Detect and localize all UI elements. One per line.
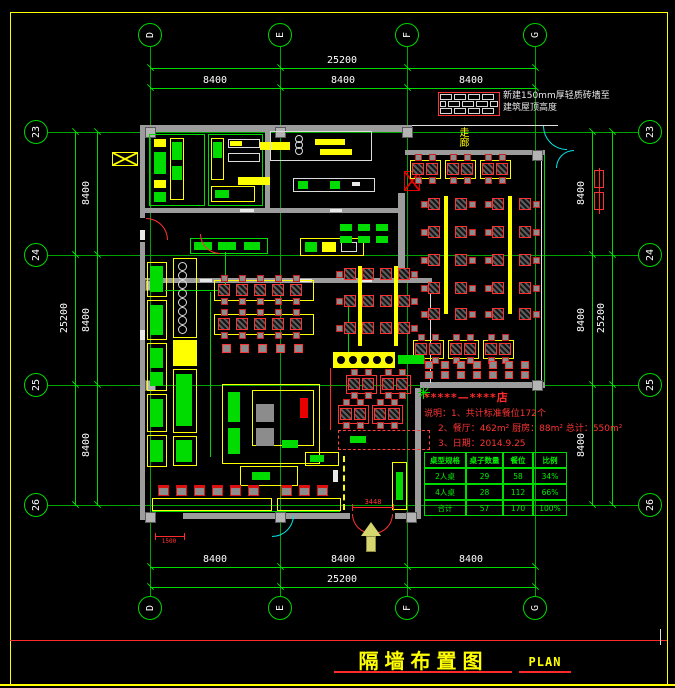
axis-bubble-label: 26: [25, 494, 47, 516]
burner: [178, 271, 187, 280]
axis-bubble-label: 26: [639, 494, 661, 516]
kitchen-equipment: [340, 224, 352, 231]
axis-bubble: D: [138, 596, 162, 620]
chair: [239, 309, 246, 316]
dimension-label: 25200: [312, 55, 372, 69]
side-door-dim-label: 1500: [152, 538, 186, 545]
wall: [140, 208, 402, 213]
dining-table: [492, 226, 504, 238]
kitchen-equipment: [150, 372, 163, 386]
dining-table: [362, 268, 374, 280]
stats-cell: 170: [503, 500, 533, 516]
wall: [544, 155, 545, 383]
chair: [239, 332, 246, 339]
chair: [385, 369, 392, 376]
stats-cell: 58: [503, 468, 533, 484]
chair: [221, 275, 228, 282]
dimension-label: 25200: [59, 293, 73, 343]
wall: [541, 155, 542, 383]
chair: [230, 485, 241, 496]
kitchen-equipment: [140, 230, 145, 240]
kitchen-equipment: [240, 209, 254, 212]
door-swing: [146, 218, 168, 240]
chair: [502, 334, 509, 341]
kitchen-equipment: [330, 181, 340, 189]
kitchen-equipment: [322, 242, 336, 252]
stats-cell: 100%: [533, 500, 567, 516]
chair: [441, 361, 449, 369]
door-swing: [556, 150, 574, 168]
dining-table: [464, 343, 476, 355]
chair: [467, 334, 474, 341]
chair: [391, 422, 398, 429]
chair: [453, 334, 460, 341]
dining-table: [455, 226, 467, 238]
dimension-label: 8400: [81, 168, 95, 218]
kitchen-equipment: [154, 192, 166, 202]
kitchen-equipment: [150, 440, 163, 462]
chair: [533, 285, 540, 292]
axis-bubble-label: D: [139, 24, 161, 46]
seat-stats-table: 桌型规格桌子数量餐位比例2人桌295834%4人桌2811266%合计57170…: [424, 452, 567, 516]
dining-table: [362, 378, 374, 390]
axis-bubble: G: [523, 596, 547, 620]
kitchen-equipment: [152, 511, 340, 512]
dining-table: [461, 163, 473, 175]
stats-cell: 57: [466, 500, 503, 516]
kitchen-equipment: [228, 392, 240, 422]
kitchen-equipment: [256, 404, 274, 422]
chair: [258, 344, 267, 353]
chair: [533, 229, 540, 236]
axis-bubble: D: [138, 23, 162, 47]
dim-line: [612, 132, 613, 506]
chair: [464, 177, 471, 184]
dimension-label: 8400: [190, 554, 240, 568]
dining-table: [380, 268, 392, 280]
axis-bubble-label: 24: [25, 244, 47, 266]
dining-table: [362, 295, 374, 307]
chair: [248, 485, 259, 496]
chair: [421, 285, 428, 292]
kitchen-equipment: [228, 153, 260, 162]
wall: [405, 150, 545, 155]
axis-bubble-label: G: [524, 24, 546, 46]
chair: [240, 344, 249, 353]
chair: [450, 177, 457, 184]
drawing-title: 隔墙布置图: [336, 645, 511, 674]
kitchen-equipment: [154, 139, 166, 147]
chair: [499, 154, 506, 161]
dining-table: [382, 378, 394, 390]
kitchen-equipment: [315, 139, 345, 145]
page-border-left: [10, 12, 11, 684]
dining-table: [455, 198, 467, 210]
dining-table: [218, 318, 230, 330]
side-door-dim: [155, 536, 185, 537]
page-border-top: [10, 12, 668, 13]
dining-table: [344, 268, 356, 280]
axis-bubble: 25: [638, 373, 662, 397]
dining-table: [519, 308, 531, 320]
chair: [415, 154, 422, 161]
chair: [212, 485, 223, 496]
chair: [533, 311, 540, 318]
chair: [489, 371, 497, 379]
dining-table: [380, 322, 392, 334]
chair: [377, 399, 384, 406]
dining-table: [492, 254, 504, 266]
dining-table: [415, 343, 427, 355]
kitchen-equipment: [172, 142, 182, 160]
axis-bubble-label: E: [269, 597, 291, 619]
dining-table: [429, 343, 441, 355]
chair: [351, 369, 358, 376]
corridor-label: 走廊: [457, 127, 468, 163]
kitchen-equipment: [298, 181, 308, 189]
dimension-label: 8400: [318, 554, 368, 568]
chair: [391, 399, 398, 406]
chair: [441, 371, 449, 379]
dining-table: [236, 318, 248, 330]
axis-bubble: 23: [638, 120, 662, 144]
dining-table: [412, 163, 424, 175]
chair: [485, 311, 492, 318]
chair: [457, 361, 465, 369]
dining-table: [254, 318, 266, 330]
chair: [421, 201, 428, 208]
dining-table: [272, 318, 284, 330]
axis-bubble: 24: [24, 243, 48, 267]
dining-table: [492, 308, 504, 320]
dimension-label: 25200: [312, 574, 372, 588]
dining-table: [354, 408, 366, 420]
chair: [411, 298, 418, 305]
dining-table: [362, 322, 374, 334]
axis-bubble: G: [523, 23, 547, 47]
chair: [357, 399, 364, 406]
kitchen-equipment: [176, 440, 192, 462]
chair: [505, 361, 513, 369]
bar-stool: [385, 356, 393, 364]
kitchen-equipment: [295, 147, 303, 155]
kitchen-equipment: [238, 177, 270, 185]
dining-table: [519, 254, 531, 266]
shop-title: *****—****店: [424, 389, 509, 405]
chair: [411, 325, 418, 332]
wall: [140, 132, 145, 520]
stats-cell: 29: [466, 468, 503, 484]
axis-bubble: F: [395, 596, 419, 620]
axis-bubble: 23: [24, 120, 48, 144]
note-line3: 3、日期：2014.9.25: [438, 436, 526, 449]
kitchen-equipment: [150, 305, 163, 335]
chair: [275, 332, 282, 339]
chair: [343, 399, 350, 406]
titleblock-rule: [10, 640, 667, 641]
note-line2: 2、餐厅：462m² 厨房：88m² 总计：550m²: [438, 421, 622, 434]
bar-stool: [337, 356, 345, 364]
axis-bubble: 26: [24, 493, 48, 517]
burner: [178, 307, 187, 316]
dining-table: [290, 284, 302, 296]
dining-table: [344, 322, 356, 334]
drawing-canvas: DDEEFFGG23232424252526262520084008400840…: [0, 0, 675, 688]
dining-table: [455, 308, 467, 320]
chair: [343, 422, 350, 429]
kitchen-equipment: [252, 472, 270, 480]
chair: [257, 275, 264, 282]
chair: [294, 344, 303, 353]
chair: [194, 485, 205, 496]
kitchen-equipment: [154, 152, 166, 174]
burner: [178, 280, 187, 289]
chair: [425, 371, 433, 379]
dining-table: [218, 284, 230, 296]
chair: [499, 177, 506, 184]
chair: [299, 485, 310, 496]
chair: [505, 371, 513, 379]
stats-cell: 28: [466, 484, 503, 500]
kitchen-equipment: [154, 180, 166, 188]
axis-bubble-label: F: [396, 597, 418, 619]
chair: [351, 392, 358, 399]
kitchen-equipment: [210, 292, 211, 457]
dining-table: [519, 282, 531, 294]
chair: [521, 371, 529, 379]
column: [532, 150, 543, 161]
kitchen-equipment: [270, 131, 372, 161]
dining-table: [272, 284, 284, 296]
dining-table: [485, 343, 497, 355]
kitchen-equipment: [150, 266, 163, 292]
chair: [365, 392, 372, 399]
chair: [521, 361, 529, 369]
stats-cell: 4人桌: [424, 484, 466, 500]
chair: [488, 334, 495, 341]
counter: [398, 355, 424, 364]
axis-bubble-label: 25: [639, 374, 661, 396]
chair: [473, 371, 481, 379]
kitchen-equipment: [305, 242, 317, 252]
dimension-label: 8400: [576, 168, 590, 218]
wall: [412, 125, 558, 126]
chair: [418, 334, 425, 341]
kitchen-equipment: [150, 348, 163, 368]
dining-table: [388, 408, 400, 420]
chair: [357, 422, 364, 429]
dining-table: [455, 254, 467, 266]
stats-cell: 112: [503, 484, 533, 500]
dining-table: [396, 378, 408, 390]
kitchen-equipment: [330, 368, 331, 430]
chair: [457, 371, 465, 379]
dining-table: [492, 198, 504, 210]
chair: [489, 361, 497, 369]
chair: [450, 154, 457, 161]
chair: [469, 201, 476, 208]
axis-bubble-label: 24: [639, 244, 661, 266]
column: [406, 512, 417, 523]
kitchen-equipment: [173, 340, 197, 366]
chair: [176, 485, 187, 496]
axis-bubble: 26: [638, 493, 662, 517]
title-underline: [334, 671, 512, 673]
door-swing: [543, 126, 567, 150]
chair: [257, 309, 264, 316]
dining-table: [450, 343, 462, 355]
plan-underline: [519, 671, 571, 673]
chair: [469, 311, 476, 318]
chair: [432, 357, 439, 364]
axis-bubble-label: F: [396, 24, 418, 46]
wall-note-line2: 建筑屋顶高度: [503, 100, 557, 113]
chair: [275, 309, 282, 316]
stats-header-cell: 餐位: [503, 452, 533, 468]
dining-table: [428, 308, 440, 320]
dining-table: [499, 343, 511, 355]
chair: [239, 275, 246, 282]
kitchen-equipment: [213, 142, 222, 158]
dining-table: [447, 163, 459, 175]
page-border-right: [667, 12, 668, 684]
chair: [336, 271, 343, 278]
stats-header-cell: 桌型规格: [424, 452, 466, 468]
dimension-label: 8400: [576, 295, 590, 345]
chair: [485, 229, 492, 236]
burner: [178, 316, 187, 325]
bar-stool: [349, 356, 357, 364]
wall: [420, 382, 545, 388]
kitchen-equipment: [396, 472, 403, 500]
chair: [485, 285, 492, 292]
dining-table: [428, 226, 440, 238]
dining-table: [428, 282, 440, 294]
dimension-label: 8400: [446, 75, 496, 89]
chair: [221, 298, 228, 305]
column: [145, 512, 156, 523]
chair: [429, 154, 436, 161]
chair: [421, 311, 428, 318]
chair: [336, 298, 343, 305]
kitchen-equipment: [358, 236, 370, 243]
door-swing: [272, 515, 294, 537]
kitchen-equipment: [352, 182, 360, 186]
burner: [178, 262, 187, 271]
chair: [336, 325, 343, 332]
chair: [365, 369, 372, 376]
kitchen-equipment: [230, 141, 242, 146]
dining-table: [374, 408, 386, 420]
stats-cell: 2人桌: [424, 468, 466, 484]
chair: [239, 298, 246, 305]
chair: [293, 332, 300, 339]
plan-label: PLAN: [520, 655, 570, 669]
axis-bubble-label: 23: [639, 121, 661, 143]
chair: [221, 309, 228, 316]
kitchen-equipment: [376, 224, 388, 231]
kitchen-equipment: [300, 398, 308, 418]
dining-table: [398, 295, 410, 307]
chair: [533, 201, 540, 208]
chair: [485, 257, 492, 264]
kitchen-equipment: [215, 190, 229, 198]
dining-table: [482, 163, 494, 175]
chair: [377, 422, 384, 429]
chair: [411, 271, 418, 278]
stats-header-cell: 比例: [533, 452, 567, 468]
kitchen-equipment: [112, 152, 138, 166]
dining-table: [348, 378, 360, 390]
kitchen-equipment: [200, 279, 212, 282]
axis-bubble: E: [268, 23, 292, 47]
chair: [221, 332, 228, 339]
kitchen-equipment: [376, 236, 388, 243]
dimension-label: 8400: [81, 295, 95, 345]
dining-table: [290, 318, 302, 330]
border-tick: [660, 629, 661, 645]
chair: [399, 392, 406, 399]
note-line1: 说明：1、共计标准餐位172个: [424, 406, 546, 419]
dim-line: [97, 132, 98, 506]
kitchen-equipment: [140, 330, 145, 340]
kitchen-equipment: [176, 374, 192, 426]
dimension-label: 25200: [596, 293, 610, 343]
dimension-label: 8400: [318, 75, 368, 89]
dimension-label: 8400: [446, 554, 496, 568]
chair: [293, 309, 300, 316]
chair: [533, 257, 540, 264]
burner: [178, 298, 187, 307]
kitchen-equipment: [341, 242, 357, 252]
bench: [152, 498, 272, 511]
chair: [399, 369, 406, 376]
axis-bubble: 24: [638, 243, 662, 267]
stats-header-cell: 桌子数量: [466, 452, 503, 468]
kitchen-equipment: [172, 166, 182, 180]
chair: [281, 485, 292, 496]
chair: [425, 361, 433, 369]
kitchen-equipment: [350, 436, 366, 443]
wall: [415, 388, 421, 519]
chair: [469, 257, 476, 264]
kitchen-equipment: [343, 456, 345, 510]
dining-table: [496, 163, 508, 175]
chair: [469, 285, 476, 292]
dining-table: [455, 282, 467, 294]
kitchen-equipment: [340, 236, 352, 243]
chair: [473, 361, 481, 369]
stats-cell: 66%: [533, 484, 567, 500]
banquette: [508, 196, 512, 314]
axis-bubble-label: 25: [25, 374, 47, 396]
kitchen-equipment: [358, 224, 370, 231]
axis-bubble-label: 23: [25, 121, 47, 143]
chair: [317, 485, 328, 496]
chair: [429, 177, 436, 184]
burner: [178, 325, 187, 334]
kitchen-equipment: [282, 440, 298, 448]
chair: [257, 332, 264, 339]
kitchen-equipment: [150, 399, 163, 427]
dining-table: [426, 163, 438, 175]
chair: [158, 485, 169, 496]
entrance-arrow-shaft: [366, 536, 376, 552]
dining-table: [492, 282, 504, 294]
chair: [257, 298, 264, 305]
dining-table: [428, 254, 440, 266]
dining-table: [340, 408, 352, 420]
